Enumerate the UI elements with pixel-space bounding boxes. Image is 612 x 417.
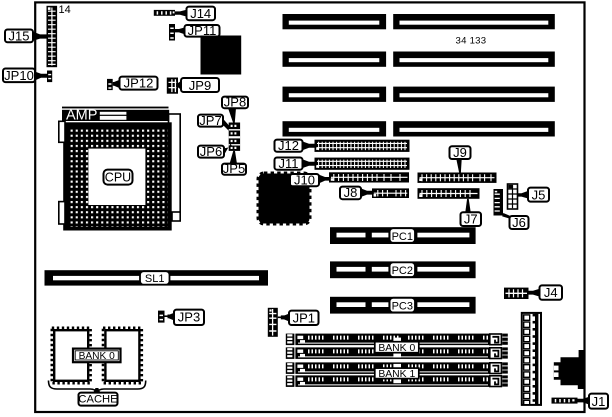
svg-text:AMP: AMP: [66, 108, 97, 124]
svg-text:J7: J7: [464, 212, 478, 227]
svg-text:J9: J9: [453, 145, 467, 160]
svg-text:JP1: JP1: [293, 310, 315, 325]
svg-text:PC2: PC2: [392, 265, 413, 277]
svg-text:JP3: JP3: [178, 310, 200, 325]
svg-text:14: 14: [59, 4, 71, 16]
svg-text:J1: J1: [592, 394, 606, 409]
svg-text:JP6: JP6: [200, 144, 222, 159]
svg-text:J4: J4: [544, 285, 558, 300]
svg-text:J6: J6: [512, 215, 526, 230]
svg-text:J14: J14: [190, 6, 211, 21]
svg-text:34 133: 34 133: [456, 35, 487, 46]
svg-text:J11: J11: [279, 156, 299, 171]
svg-text:J12: J12: [278, 138, 299, 153]
svg-text:CACHE: CACHE: [78, 394, 117, 406]
svg-text:J5: J5: [532, 187, 546, 202]
svg-text:J10: J10: [294, 172, 315, 187]
svg-text:JP12: JP12: [124, 76, 154, 91]
svg-text:BANK 1: BANK 1: [378, 369, 415, 380]
svg-text:PC3: PC3: [392, 301, 413, 313]
svg-text:BANK 0: BANK 0: [378, 343, 415, 354]
svg-text:BANK 0: BANK 0: [79, 351, 116, 362]
svg-text:PC1: PC1: [392, 231, 413, 243]
svg-text:JP8: JP8: [224, 94, 246, 109]
svg-text:JP9: JP9: [189, 78, 211, 93]
svg-text:J8: J8: [344, 185, 358, 200]
svg-text:SL1: SL1: [145, 273, 165, 285]
svg-text:CPU: CPU: [105, 171, 131, 185]
svg-text:JP10: JP10: [4, 68, 34, 83]
svg-text:J15: J15: [9, 28, 30, 43]
svg-text:JP7: JP7: [199, 113, 221, 128]
svg-text:JP5: JP5: [223, 161, 245, 176]
